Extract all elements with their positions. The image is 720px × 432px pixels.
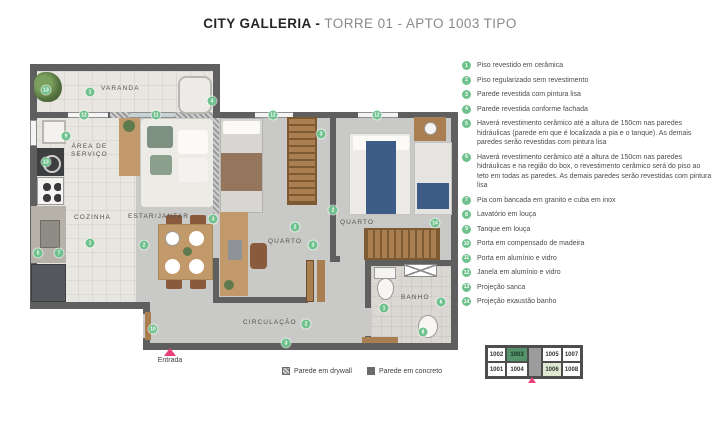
lamp — [424, 122, 437, 135]
finish-legend-item: 6Haverá revestimento cerâmico até a altu… — [462, 153, 712, 191]
wall — [213, 64, 220, 118]
plan-marker-13: 13 — [42, 86, 51, 95]
finish-description: Pia com bancada em granito e cuba em ino… — [477, 196, 616, 206]
room-label: QUARTO — [340, 219, 374, 227]
room-label: ÁREA DE SERVIÇO — [71, 143, 108, 159]
plan-marker-3: 3 — [317, 130, 326, 139]
nightstand — [414, 117, 446, 141]
plan-marker-3: 3 — [309, 241, 318, 250]
burners — [40, 180, 61, 202]
finish-description: Porta em compensado de madeira — [477, 239, 584, 249]
wall-legend-drywall: Parede em drywall — [282, 367, 352, 375]
finish-legend-item: 14Projeção exaustão banho — [462, 297, 712, 307]
room-label: ESTAR/JANTAR — [128, 213, 189, 221]
bed-2 — [349, 133, 411, 215]
finish-legend-item: 7Pia com bancada em granito e cuba em in… — [462, 196, 712, 206]
drywall-swatch-icon — [282, 367, 290, 375]
finish-number-badge: 5 — [462, 119, 471, 128]
blanket — [221, 153, 262, 191]
single-bed — [414, 142, 452, 215]
finish-legend-item: 1Piso revestido em cerâmica — [462, 61, 712, 71]
wall-legend-concrete: Parede em concreto — [367, 367, 442, 375]
plan-marker-14: 14 — [431, 219, 440, 228]
key-plan-unit-1002: 1002 — [487, 347, 506, 362]
kitchen-sink — [40, 220, 60, 248]
plan-marker-11: 11 — [152, 111, 161, 120]
finish-description: Haverá revestimento cerâmico até a altur… — [477, 153, 712, 191]
room-label: COZINHA — [74, 214, 111, 222]
finish-legend: 1Piso revestido em cerâmica2Piso regular… — [462, 61, 712, 312]
finish-description: Parede revestida conforme fachada — [477, 105, 588, 115]
plan-marker-9: 9 — [62, 132, 71, 141]
plan-marker-1: 1 — [86, 239, 95, 248]
key-plan-unit-1006: 1006 — [542, 362, 562, 377]
plan-marker-2: 2 — [140, 241, 149, 250]
finish-number-badge: 13 — [462, 283, 471, 292]
plan-notch — [30, 309, 143, 350]
key-plan-unit-1003: 1003 — [506, 347, 528, 362]
armchair — [178, 76, 212, 114]
laptop — [228, 240, 242, 260]
wall — [30, 302, 150, 309]
blanket — [366, 141, 396, 214]
sliding-door — [306, 260, 314, 302]
room-label: CIRCULAÇÃO — [243, 319, 297, 327]
pillow — [223, 121, 260, 134]
entrance-label: Entrada — [148, 357, 192, 364]
wall — [330, 112, 336, 258]
wall — [365, 260, 371, 308]
desk — [220, 212, 248, 296]
plan-marker-13: 13 — [42, 158, 51, 167]
plan-marker-8: 8 — [419, 328, 428, 337]
plate — [165, 231, 180, 246]
drywall — [213, 118, 219, 214]
plan-marker-3: 3 — [282, 339, 291, 348]
finish-description: Janela em alumínio e vidro — [477, 268, 561, 278]
building-key-plan: 10021003100510071001100410061008 — [485, 345, 583, 379]
plan-marker-1: 1 — [380, 304, 389, 313]
concrete-swatch-icon — [367, 367, 375, 375]
desk-plant — [224, 280, 234, 290]
finish-legend-item: 4Parede revestida conforme fachada — [462, 105, 712, 115]
plan-marker-10: 10 — [149, 325, 158, 334]
wall — [330, 256, 340, 262]
finish-description: Piso revestido em cerâmica — [477, 61, 563, 71]
room-label: QUARTO — [268, 238, 302, 246]
finish-description: Projeção exaustão banho — [477, 297, 556, 307]
finish-description: Projeção sanca — [477, 283, 525, 293]
finish-description: Haverá revestimento cerâmico até a altur… — [477, 119, 712, 148]
fridge — [31, 264, 66, 302]
panel-plant — [123, 120, 135, 132]
table-plant — [183, 247, 192, 256]
bath-bench — [362, 337, 398, 343]
finish-number-badge: 2 — [462, 76, 471, 85]
plan-marker-12: 12 — [373, 111, 382, 120]
stove — [37, 177, 64, 205]
plan-marker-5: 5 — [34, 249, 43, 258]
wall-legend-concrete-label: Parede em concreto — [379, 368, 442, 375]
finish-number-badge: 12 — [462, 268, 471, 277]
sofa-pillow — [178, 130, 208, 154]
wardrobe-1 — [287, 117, 317, 205]
finish-number-badge: 7 — [462, 196, 471, 205]
wall — [143, 343, 458, 350]
plan-marker-12: 12 — [80, 111, 89, 120]
plan-marker-4: 4 — [208, 97, 217, 106]
finish-number-badge: 14 — [462, 297, 471, 306]
room-label: BANHO — [401, 294, 430, 302]
finish-legend-item: 11Porta em alumínio e vidro — [462, 254, 712, 264]
finish-number-badge: 9 — [462, 225, 471, 234]
bed-1 — [220, 118, 263, 213]
wall — [30, 64, 220, 71]
finish-legend-list: 1Piso revestido em cerâmica2Piso regular… — [462, 61, 712, 307]
plan-marker-3: 3 — [209, 215, 218, 224]
dining-table — [158, 224, 213, 280]
plan-marker-12: 12 — [269, 111, 278, 120]
blanket — [417, 183, 449, 209]
key-plan-unit-1004: 1004 — [506, 362, 528, 377]
finish-legend-item: 5Haverá revestimento cerâmico até a altu… — [462, 119, 712, 148]
sofa-cushion — [150, 155, 172, 175]
finish-number-badge: 6 — [462, 153, 471, 162]
key-plan-unit-1008: 1008 — [562, 362, 581, 377]
plan-marker-2: 2 — [291, 223, 300, 232]
key-plan-arrow-icon — [528, 377, 536, 383]
shower-box — [404, 264, 437, 277]
finish-number-badge: 8 — [462, 210, 471, 219]
finish-number-badge: 4 — [462, 105, 471, 114]
wall — [451, 112, 458, 350]
finish-legend-item: 3Parede revestida com pintura lisa — [462, 90, 712, 100]
finish-description: Parede revestida com pintura lisa — [477, 90, 581, 100]
room-label: VARANDA — [101, 85, 140, 93]
finish-legend-item: 8Lavatório em louça — [462, 210, 712, 220]
key-plan-unit-1005: 1005 — [542, 347, 562, 362]
sofa-cushion — [147, 126, 173, 148]
wall-legend-drywall-label: Parede em drywall — [294, 368, 352, 375]
finish-legend-item: 12Janela em alumínio e vidro — [462, 268, 712, 278]
finish-legend-item: 10Porta em compensado de madeira — [462, 239, 712, 249]
finish-number-badge: 3 — [462, 90, 471, 99]
plan-marker-7: 7 — [55, 249, 64, 258]
finish-number-badge: 10 — [462, 239, 471, 248]
finish-legend-item: 13Projeção sanca — [462, 283, 712, 293]
plan-marker-6: 6 — [437, 298, 446, 307]
desk-chair — [250, 243, 267, 269]
finish-legend-item: 2Piso regularizado sem revestimento — [462, 76, 712, 86]
finish-legend-item: 9Tanque em louça — [462, 225, 712, 235]
finish-number-badge: 11 — [462, 254, 471, 263]
finish-description: Piso regularizado sem revestimento — [477, 76, 588, 86]
key-plan-unit-1007: 1007 — [562, 347, 581, 362]
wardrobe-2 — [364, 228, 440, 260]
finish-description: Porta em alumínio e vidro — [477, 254, 557, 264]
finish-description: Tanque em louça — [477, 225, 530, 235]
plan-marker-1: 1 — [86, 88, 95, 97]
wall — [218, 297, 308, 303]
finish-description: Lavatório em louça — [477, 210, 536, 220]
plan-marker-2: 2 — [302, 320, 311, 329]
window — [30, 120, 37, 146]
key-plan-core — [528, 347, 542, 377]
entrance-arrow-icon — [164, 348, 176, 356]
finish-number-badge: 1 — [462, 61, 471, 70]
key-plan-unit-1001: 1001 — [487, 362, 506, 377]
plan-marker-2: 2 — [329, 206, 338, 215]
